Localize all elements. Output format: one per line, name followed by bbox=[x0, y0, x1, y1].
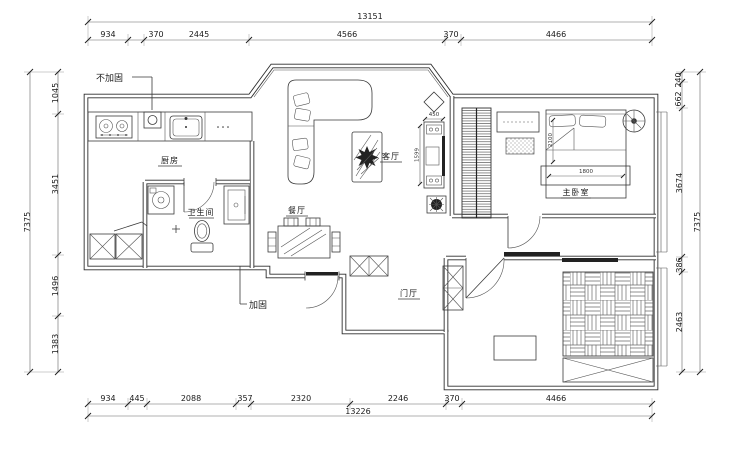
bathroom-label: 卫生间 bbox=[188, 207, 215, 217]
dim-top-total: 13151 bbox=[357, 12, 382, 21]
dining-room-label: 餐厅 bbox=[288, 206, 306, 215]
dim-top-seg-2: 370 bbox=[148, 30, 163, 39]
reinforced-label: 加固 bbox=[249, 300, 267, 311]
dim-top-seg-5: 370 bbox=[443, 30, 458, 39]
dim-bottom-seg-2: 445 bbox=[129, 394, 144, 403]
dim-left-total: 7375 bbox=[23, 212, 32, 232]
dim-bottom-seg-3: 2088 bbox=[181, 394, 201, 403]
dim-bottom-seg-4: 357 bbox=[237, 394, 252, 403]
tv-width-dim: 450 bbox=[429, 112, 440, 118]
dim-top-seg-3: 2445 bbox=[189, 30, 209, 39]
living-room-label: 客厅 bbox=[382, 151, 400, 161]
master-bedroom-label: 主卧室 bbox=[563, 187, 590, 197]
dim-right-seg-2: 662 bbox=[674, 91, 683, 106]
floor-plan-page: 13151 934 370 2445 4566 370 4466 934 445… bbox=[0, 0, 740, 450]
dim-bottom-total: 13226 bbox=[345, 407, 370, 416]
dim-top-seg-4: 4566 bbox=[337, 30, 357, 39]
dim-left-seg-4: 1383 bbox=[51, 334, 60, 354]
rug-icon bbox=[506, 138, 534, 154]
dim-bottom-seg-5: 2320 bbox=[291, 394, 311, 403]
kitchen-label: 厨房 bbox=[161, 155, 179, 165]
dim-left-seg-1: 1045 bbox=[51, 83, 60, 103]
tv-length-dim: 1599 bbox=[415, 148, 421, 162]
dim-right-total: 7375 bbox=[693, 212, 702, 232]
dim-top-seg-6: 4466 bbox=[546, 30, 566, 39]
ceiling-fan-icon bbox=[623, 110, 645, 132]
bathroom-door-opening bbox=[184, 178, 216, 187]
bed-width-dim: 1800 bbox=[579, 169, 593, 175]
floor-plan-drawing: 13151 934 370 2445 4566 370 4466 934 445… bbox=[0, 0, 740, 450]
dim-left-seg-3: 1496 bbox=[51, 276, 60, 296]
dim-left-seg-2: 3451 bbox=[51, 174, 60, 194]
dim-bottom-seg-7: 370 bbox=[444, 394, 459, 403]
dim-bottom-seg-6: 2246 bbox=[388, 394, 408, 403]
dim-right-seg-1: 240 bbox=[674, 72, 683, 87]
dim-right-seg-3: 3674 bbox=[675, 173, 684, 193]
dim-right-seg-5: 2463 bbox=[675, 312, 684, 332]
wardrobe-icon bbox=[462, 108, 491, 218]
dim-top-seg-1: 934 bbox=[100, 30, 115, 39]
not-reinforced-label: 不加固 bbox=[96, 73, 123, 84]
dim-bottom-seg-1: 934 bbox=[100, 394, 115, 403]
woven-mat-area bbox=[563, 272, 653, 356]
hall-label: 门厅 bbox=[400, 288, 418, 298]
bed-length-dim: 2100 bbox=[548, 133, 554, 147]
dim-right-seg-4: 386 bbox=[675, 257, 684, 272]
dim-bottom-seg-8: 4466 bbox=[546, 394, 566, 403]
